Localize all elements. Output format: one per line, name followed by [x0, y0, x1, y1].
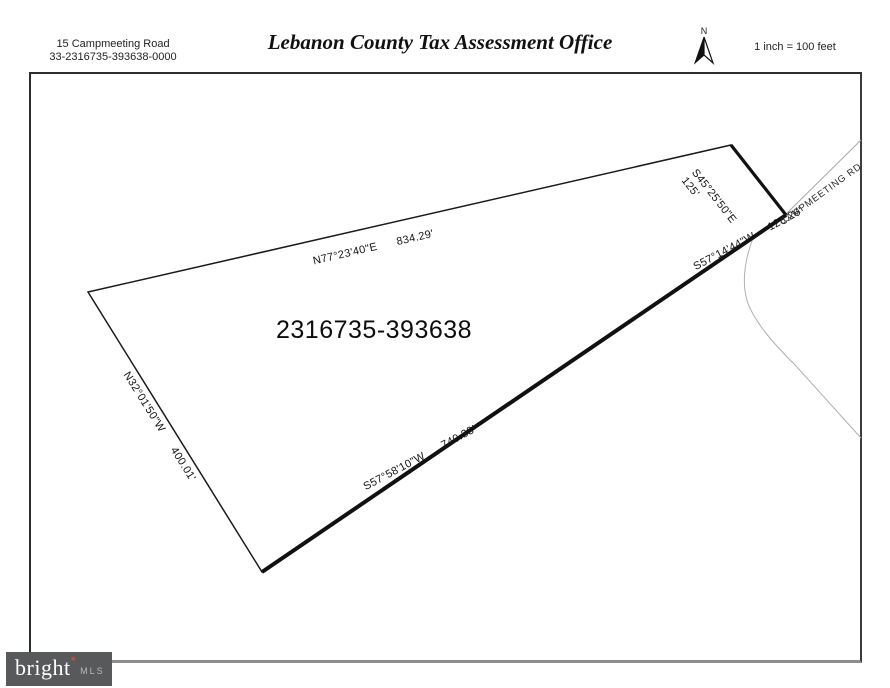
brightmls-logo: bright✶MLS — [6, 652, 112, 686]
logo-suffix: MLS — [80, 666, 105, 676]
distance-text: 400.01' — [168, 445, 198, 483]
logo-word: bright — [15, 653, 71, 683]
distance-text: 740.33' — [439, 423, 478, 451]
tax-assessment-map-page: 15 Campmeeting Road 33-2316735-393638-00… — [0, 0, 890, 688]
star-icon: ✶ — [70, 654, 78, 665]
road-curve-line — [744, 238, 861, 438]
bearing-text: N77°23'40"E — [312, 241, 379, 267]
distance-text: 834.29' — [395, 228, 435, 248]
parcel-number-label: 2316735-393638 — [276, 316, 472, 345]
